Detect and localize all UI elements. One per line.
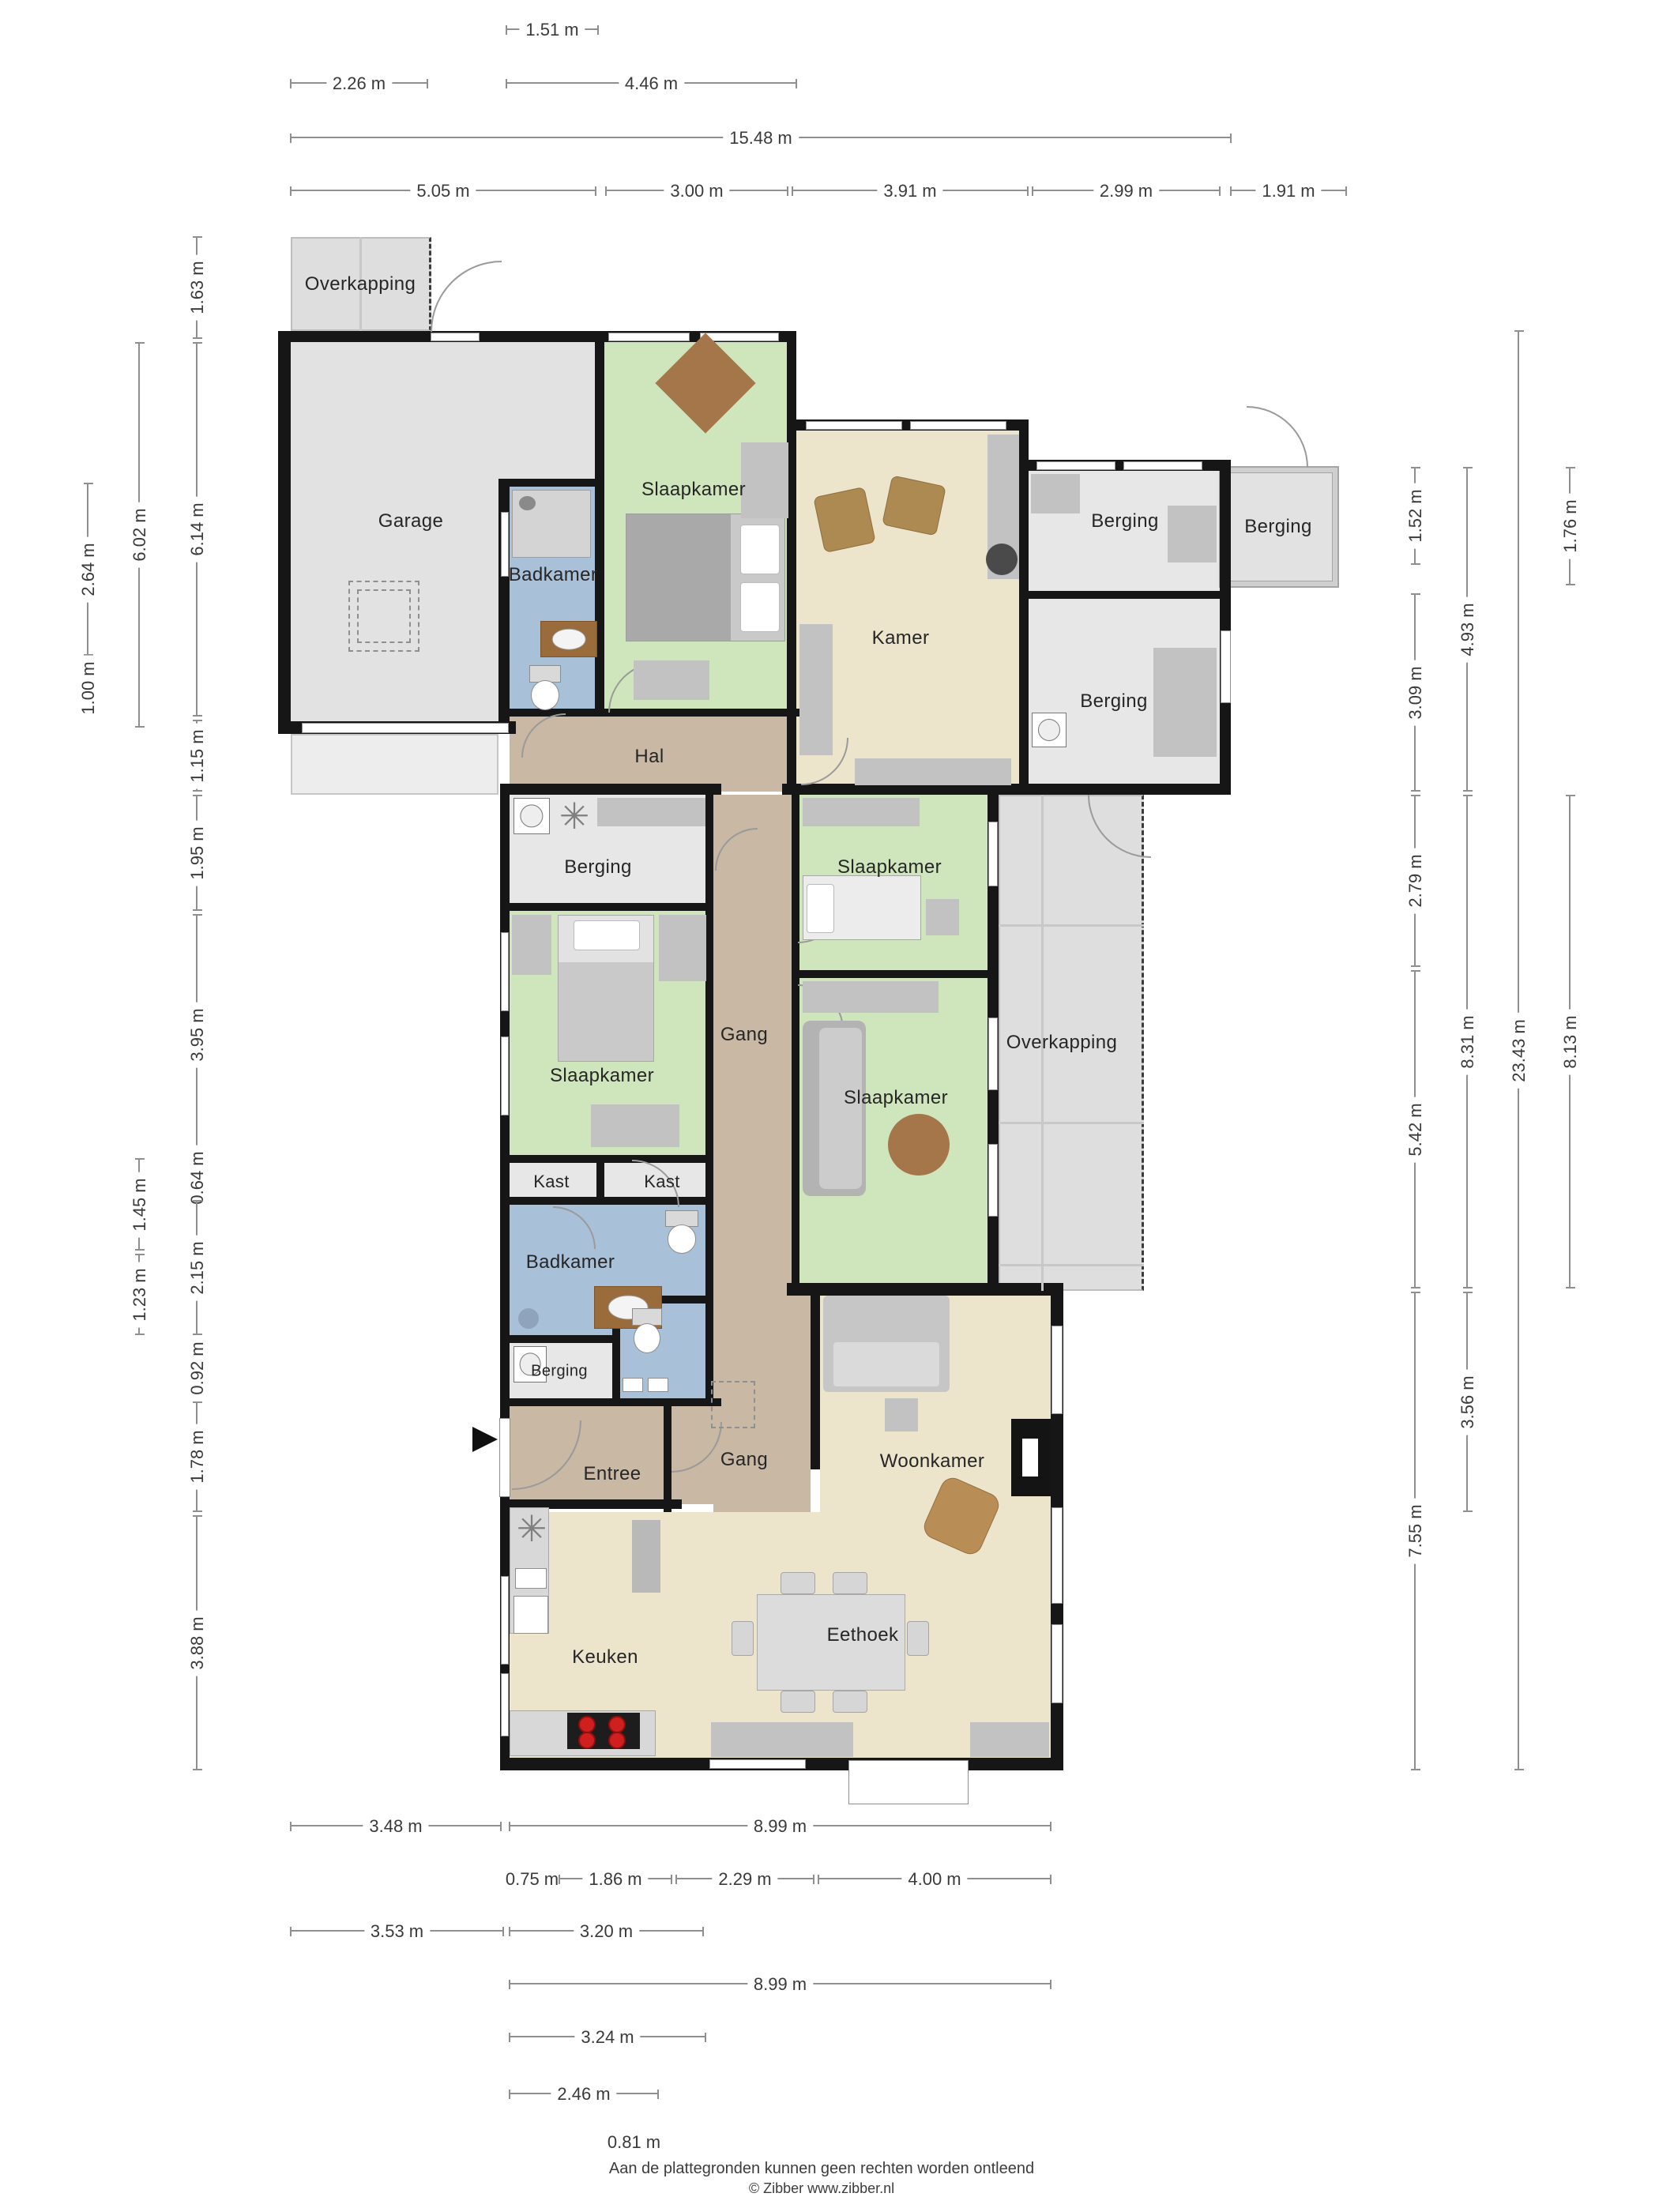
dimension-v: 2.79 m bbox=[1414, 796, 1416, 966]
dimension-h: 3.00 m bbox=[606, 190, 788, 191]
dimension-label: 2.99 m bbox=[1093, 181, 1159, 201]
dimension-label: 5.42 m bbox=[1405, 1097, 1426, 1162]
dimension-v: 1.23 m bbox=[138, 1255, 140, 1334]
dimension-label: 3.91 m bbox=[877, 181, 942, 201]
dimension-v: 1.76 m bbox=[1569, 468, 1571, 585]
dimension-v: 1.00 m bbox=[87, 660, 88, 716]
dimension-h: 3.91 m bbox=[792, 190, 1028, 191]
dimension-h: 1.86 m bbox=[559, 1878, 671, 1879]
dimension-h: 3.53 m bbox=[291, 1930, 503, 1932]
dimensions-layer: 1.51 m2.26 m4.46 m15.48 m5.05 m3.00 m3.9… bbox=[0, 0, 1659, 2212]
dimension-v: 1.78 m bbox=[196, 1402, 197, 1511]
dimension-label: 2.26 m bbox=[326, 73, 392, 94]
dimension-h: 15.48 m bbox=[291, 137, 1231, 138]
dimension-h: 1.51 m bbox=[506, 28, 598, 30]
dimension-label: 1.63 m bbox=[187, 254, 208, 320]
dimension-label: 1.51 m bbox=[519, 20, 585, 40]
dimension-h: 8.99 m bbox=[510, 1825, 1051, 1826]
dimension-h: 2.99 m bbox=[1033, 190, 1220, 191]
dimension-v: 7.55 m bbox=[1414, 1292, 1416, 1770]
dimension-label: 3.88 m bbox=[187, 1610, 208, 1676]
dimension-h: 3.48 m bbox=[291, 1825, 501, 1826]
dimension-v: 8.31 m bbox=[1466, 796, 1468, 1288]
dimension-h: 2.26 m bbox=[291, 82, 427, 84]
dimension-label: 3.56 m bbox=[1458, 1369, 1478, 1435]
dimension-label: 2.64 m bbox=[78, 536, 99, 602]
dimension-label: 15.48 m bbox=[723, 128, 799, 149]
dimension-v: 3.95 m bbox=[196, 915, 197, 1154]
dimension-h: 5.05 m bbox=[291, 190, 596, 191]
dimension-label: 1.76 m bbox=[1560, 493, 1581, 559]
dimension-label: 4.46 m bbox=[619, 73, 684, 94]
dimension-label: 1.45 m bbox=[130, 1172, 150, 1237]
dimension-h: 8.99 m bbox=[510, 1983, 1051, 1984]
dimension-label: 3.24 m bbox=[574, 2027, 640, 2048]
dimension-h: 3.20 m bbox=[510, 1930, 703, 1932]
dimension-v: 1.52 m bbox=[1414, 468, 1416, 564]
dimension-v: 2.64 m bbox=[87, 483, 88, 655]
dimension-h: 2.46 m bbox=[510, 2093, 658, 2094]
dimension-v: 3.56 m bbox=[1466, 1292, 1468, 1511]
dimension-label: 1.78 m bbox=[187, 1424, 208, 1489]
dimension-label: 8.99 m bbox=[747, 1816, 813, 1837]
dimension-label: 3.20 m bbox=[574, 1921, 639, 1942]
dimension-label: 1.95 m bbox=[187, 820, 208, 886]
footer: Aan de plattegronden kunnen geen rechten… bbox=[577, 2160, 1066, 2197]
dimension-label: 0.92 m bbox=[187, 1335, 208, 1401]
dimension-v: 6.14 m bbox=[196, 343, 197, 716]
dimension-v: 8.13 m bbox=[1569, 796, 1571, 1288]
dimension-label: 2.46 m bbox=[551, 2084, 616, 2105]
dimension-label: 23.43 m bbox=[1509, 1013, 1529, 1089]
dimension-label: 3.95 m bbox=[187, 1002, 208, 1067]
dimension-label: 0.75 m bbox=[499, 1869, 565, 1890]
dimension-label: 6.14 m bbox=[187, 496, 208, 562]
dimension-label: 6.02 m bbox=[130, 502, 150, 567]
dimension-label: 1.23 m bbox=[130, 1262, 150, 1327]
dimension-h: 0.75 m bbox=[510, 1878, 555, 1879]
dimension-v: 1.95 m bbox=[196, 796, 197, 910]
dimension-h: 3.24 m bbox=[510, 2036, 705, 2037]
dimension-v: 3.09 m bbox=[1414, 594, 1416, 791]
dimension-v: 1.15 m bbox=[196, 720, 197, 791]
dimension-label: 3.09 m bbox=[1405, 660, 1426, 725]
dimension-h: 4.46 m bbox=[506, 82, 796, 84]
dimension-label: 1.86 m bbox=[582, 1869, 648, 1890]
dimension-label: 5.05 m bbox=[410, 181, 476, 201]
dimension-label: 3.53 m bbox=[364, 1921, 430, 1942]
dimension-label: 2.79 m bbox=[1405, 848, 1426, 913]
dimension-label: 7.55 m bbox=[1405, 1498, 1426, 1563]
dimension-h: 1.91 m bbox=[1231, 190, 1346, 191]
dimension-v: 2.15 m bbox=[196, 1201, 197, 1334]
floorplan-page: ✳✳ OverkappingGarageSlaapkamerBadkamerHa… bbox=[0, 0, 1659, 2212]
dimension-label: 1.91 m bbox=[1255, 181, 1321, 201]
dimension-v: 4.93 m bbox=[1466, 468, 1468, 791]
dimension-h: 4.00 m bbox=[818, 1878, 1051, 1879]
dimension-label: 8.99 m bbox=[747, 1974, 813, 1995]
dimension-label: 8.13 m bbox=[1560, 1009, 1581, 1074]
footer-disclaimer: Aan de plattegronden kunnen geen rechten… bbox=[577, 2160, 1066, 2178]
dimension-v: 23.43 m bbox=[1518, 331, 1519, 1770]
dimension-label: 8.31 m bbox=[1458, 1009, 1478, 1074]
dimension-label: 1.00 m bbox=[78, 655, 99, 720]
dimension-h: 2.29 m bbox=[676, 1878, 814, 1879]
dimension-label: 4.93 m bbox=[1458, 596, 1478, 662]
dimension-label: 3.48 m bbox=[363, 1816, 428, 1837]
dimension-v: 0.64 m bbox=[196, 1159, 197, 1196]
dimension-label: 1.15 m bbox=[187, 723, 208, 788]
dimension-label: 2.15 m bbox=[187, 1235, 208, 1300]
dimension-label: 2.29 m bbox=[712, 1869, 777, 1890]
footer-copyright: © Zibber www.zibber.nl bbox=[577, 2180, 1066, 2197]
dimension-v: 0.92 m bbox=[196, 1339, 197, 1398]
dimension-v: 3.88 m bbox=[196, 1516, 197, 1770]
dimension-v: 1.63 m bbox=[196, 237, 197, 338]
dimension-v: 1.45 m bbox=[138, 1159, 140, 1250]
dimension-label: 4.00 m bbox=[901, 1869, 967, 1890]
dimension-label: 1.52 m bbox=[1405, 483, 1426, 548]
dimension-v: 5.42 m bbox=[1414, 971, 1416, 1288]
dimension-label: 0.81 m bbox=[601, 2132, 667, 2153]
dimension-v: 6.02 m bbox=[138, 343, 140, 727]
dimension-label: 3.00 m bbox=[664, 181, 729, 201]
